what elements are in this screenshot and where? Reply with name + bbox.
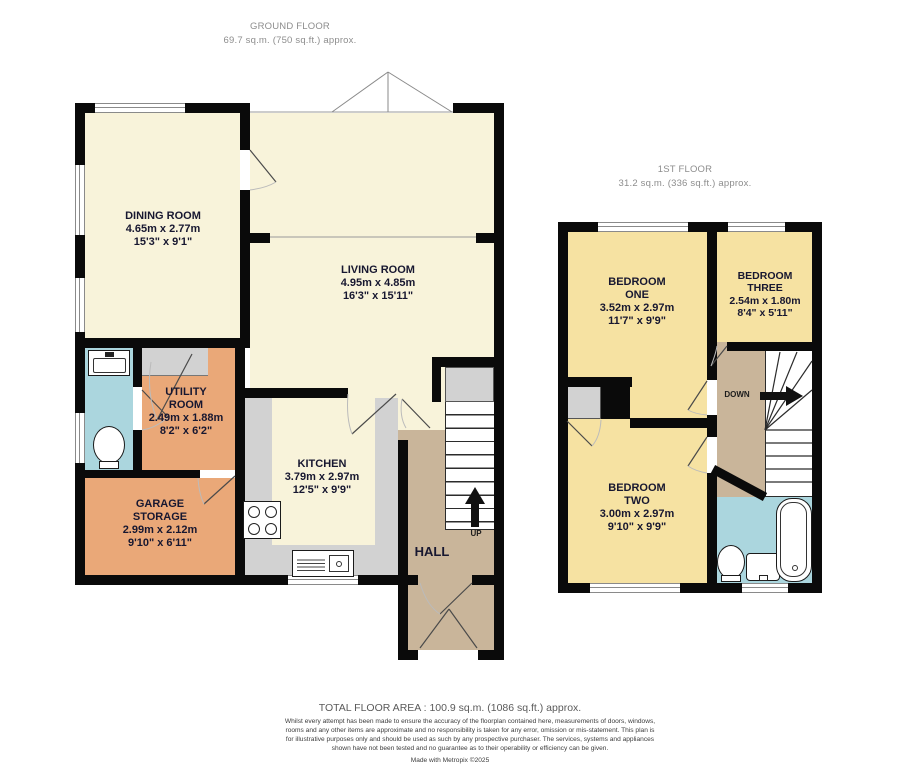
- room-garden-area: [250, 113, 494, 233]
- kitchen-sink-fixture: [292, 550, 354, 577]
- wall: [630, 418, 707, 428]
- wall: [601, 377, 630, 419]
- window: [75, 165, 85, 235]
- wall: [240, 388, 348, 398]
- window: [95, 103, 185, 113]
- window: [590, 583, 680, 593]
- garage-storage-label: GARAGE STORAGE 2.99m x 2.12m 9'10" x 6'1…: [110, 498, 210, 549]
- wall: [250, 233, 270, 243]
- room-dims-imperial: 8'4" x 5'11": [715, 307, 815, 319]
- bathroom-toilet-fixture: [717, 545, 745, 579]
- basin-tap: [105, 352, 114, 357]
- room-dims-metric: 4.95m x 4.85m: [308, 277, 448, 290]
- sink-bowl: [329, 555, 349, 572]
- room-dims-metric: 3.79m x 2.97m: [252, 471, 392, 484]
- utility-room-label: UTILITY ROOM 2.49m x 1.88m 8'2" x 6'2": [136, 386, 236, 437]
- up-label: UP: [462, 529, 490, 538]
- room-porch: [408, 585, 494, 650]
- room-name: LIVING ROOM: [341, 264, 415, 277]
- hob-burner: [265, 523, 277, 535]
- room-name: DINING ROOM: [125, 210, 201, 223]
- wc-toilet-base: [99, 461, 119, 469]
- bathtub-inner: [780, 502, 807, 577]
- stairs-up: [445, 402, 494, 530]
- room-dims-imperial: 12'5" x 9'9": [252, 484, 392, 497]
- room-dims-metric: 4.65m x 2.77m: [93, 223, 233, 236]
- wall: [133, 348, 142, 387]
- room-dims-metric: 3.00m x 2.97m: [587, 508, 687, 521]
- sink-plughole: [336, 561, 342, 567]
- wc-toilet-fixture: [93, 426, 125, 464]
- wall: [75, 470, 200, 478]
- ground-floor-title-line: GROUND FLOOR: [170, 20, 410, 34]
- wall: [240, 113, 250, 150]
- hob-burner: [248, 506, 260, 518]
- stairs-down: [765, 351, 812, 497]
- room-name: BEDROOM TWO: [601, 482, 673, 508]
- wall: [472, 575, 504, 585]
- wc-basin-fixture: [88, 350, 130, 376]
- room-name: GARAGE STORAGE: [124, 498, 196, 524]
- kitchen-label: KITCHEN 3.79m x 2.97m 12'5" x 9'9": [252, 458, 392, 497]
- wall: [478, 650, 504, 660]
- first-floor-title: 1ST FLOOR 31.2 sq.m. (336 sq.ft.) approx…: [575, 163, 795, 191]
- wall: [707, 415, 717, 437]
- wall: [707, 473, 717, 583]
- bathroom-toilet-base: [721, 575, 741, 582]
- total-floor-area: TOTAL FLOOR AREA : 100.9 sq.m. (1086 sq.…: [0, 702, 900, 714]
- hall-label: HALL: [404, 544, 460, 559]
- hob-burner: [265, 506, 277, 518]
- wall: [75, 575, 408, 585]
- utility-counter: [142, 348, 208, 376]
- bedroom-one-label: BEDROOM ONE 3.52m x 2.97m 11'7" x 9'9": [587, 276, 687, 327]
- window: [75, 413, 85, 463]
- room-name: BEDROOM THREE: [729, 270, 801, 295]
- first-floor-title-line: 1ST FLOOR: [575, 163, 795, 177]
- wall: [398, 575, 408, 660]
- floorplan-canvas: GROUND FLOOR 69.7 sq.m. (750 sq.ft.) app…: [0, 0, 900, 768]
- ground-floor-title: GROUND FLOOR 69.7 sq.m. (750 sq.ft.) app…: [170, 20, 410, 48]
- room-dims-imperial: 9'10" x 9'9": [587, 521, 687, 534]
- wall: [235, 348, 245, 585]
- window: [598, 222, 688, 232]
- hall-porch-opening: [418, 575, 472, 585]
- window: [728, 222, 785, 232]
- wall: [240, 190, 250, 348]
- wall: [75, 338, 250, 348]
- bathtub-fixture: [776, 498, 812, 582]
- dining-room-label: DINING ROOM 4.65m x 2.77m 15'3" x 9'1": [93, 210, 233, 249]
- bedroom-three-label: BEDROOM THREE 2.54m x 1.80m 8'4" x 5'11": [715, 270, 815, 319]
- room-dims-imperial: 9'10" x 6'11": [110, 537, 210, 550]
- first-floor-area: 31.2 sq.m. (336 sq.ft.) approx.: [575, 177, 795, 191]
- wall: [558, 222, 568, 593]
- basin-tap: [759, 575, 768, 581]
- wall: [476, 233, 494, 243]
- credit-text: Made with Metropix ©2025: [0, 757, 900, 764]
- room-landing: [717, 342, 765, 497]
- bedroom-two-label: BEDROOM TWO 3.00m x 2.97m 9'10" x 9'9": [587, 482, 687, 533]
- room-name: BEDROOM ONE: [601, 276, 673, 302]
- room-dims-imperial: 11'7" x 9'9": [587, 315, 687, 328]
- wall: [432, 357, 504, 367]
- down-label: DOWN: [712, 390, 762, 399]
- bathtub-plughole: [792, 565, 798, 571]
- bathroom-basin-fixture: [746, 553, 780, 581]
- hob-burner: [248, 523, 260, 535]
- room-name: UTILITY ROOM: [155, 386, 217, 412]
- wall: [432, 357, 441, 402]
- room-name: KITCHEN: [298, 458, 347, 471]
- room-dims-metric: 2.49m x 1.88m: [136, 412, 236, 425]
- room-dims-metric: 2.99m x 2.12m: [110, 524, 210, 537]
- room-dims-imperial: 8'2" x 6'2": [136, 425, 236, 438]
- room-dims-metric: 3.52m x 2.97m: [587, 302, 687, 315]
- window: [75, 278, 85, 332]
- hob-fixture: [243, 501, 281, 539]
- room-dims-imperial: 16'3" x 15'11": [308, 290, 448, 303]
- window: [742, 583, 788, 593]
- ground-floor-area: 69.7 sq.m. (750 sq.ft.) approx.: [170, 34, 410, 48]
- sink-drainer: [297, 557, 325, 571]
- french-doors-icon: [332, 72, 452, 112]
- hall-cupboard: [445, 367, 494, 402]
- room-dims-imperial: 15'3" x 9'1": [93, 236, 233, 249]
- room-dims-metric: 2.54m x 1.80m: [715, 295, 815, 307]
- living-room-label: LIVING ROOM 4.95m x 4.85m 16'3" x 15'11": [308, 264, 448, 303]
- wall: [398, 650, 418, 660]
- disclaimer-text: Whilst every attempt has been made to en…: [283, 718, 657, 754]
- basin-bowl: [93, 358, 126, 373]
- wall: [727, 342, 812, 351]
